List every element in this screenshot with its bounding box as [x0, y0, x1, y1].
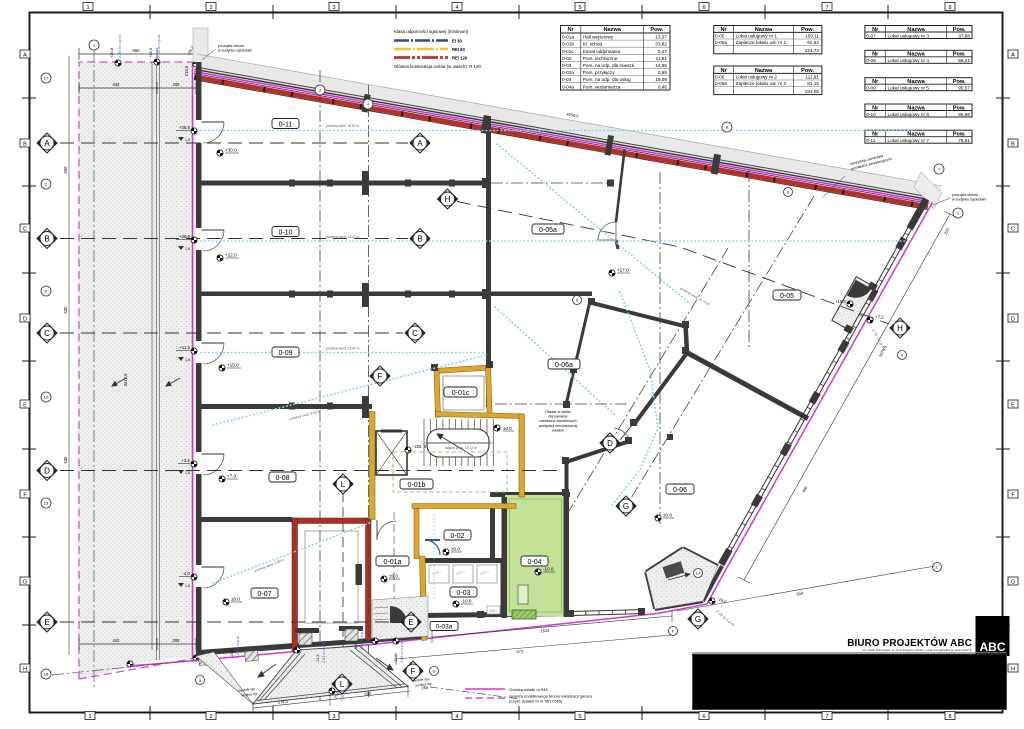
svg-text:0-01b: 0-01b	[562, 42, 574, 47]
svg-text:Nazwa: Nazwa	[755, 68, 773, 74]
svg-text:Nr: Nr	[720, 68, 727, 74]
svg-text:B: B	[23, 141, 27, 147]
svg-text:0-01c: 0-01c	[452, 390, 470, 397]
svg-text:dla kanałów: dla kanałów	[549, 415, 568, 419]
svg-text:11,91: 11,91	[656, 56, 668, 61]
svg-text:(część działek nr nr 561 i 565: (część działek nr nr 561 i 565)	[509, 699, 563, 704]
svg-text:213,5: 213,5	[184, 65, 189, 76]
svg-text:5: 5	[578, 714, 581, 720]
svg-text:Pow.: Pow.	[953, 52, 966, 58]
svg-text:wentylacji mechanicznej: wentylacji mechanicznej	[539, 424, 578, 428]
svg-text:+20,8: +20,8	[109, 47, 114, 58]
svg-text:33,82: 33,82	[655, 42, 667, 47]
svg-text:-19,5: -19,5	[230, 649, 234, 658]
svg-text:lokalów: lokalów	[552, 428, 564, 432]
svg-text:Klasa odporności ogniowej (min: Klasa odporności ogniowej (minimum)	[394, 29, 469, 34]
svg-text:0-06: 0-06	[715, 75, 725, 80]
svg-text:B: B	[417, 235, 422, 244]
svg-text:C: C	[412, 329, 418, 338]
svg-text:Pom. techniczne: Pom. techniczne	[583, 56, 618, 61]
svg-text:C: C	[23, 226, 27, 232]
svg-text:Nazwa: Nazwa	[603, 27, 621, 33]
svg-text:PL-72600 Świnoujście, ul. Armi: PL-72600 Świnoujście, ul. Armii Krajowej…	[863, 647, 973, 652]
svg-text:A: A	[23, 52, 27, 58]
svg-text:nawiewno-wywiewnych: nawiewno-wywiewnych	[539, 419, 576, 423]
svg-text:111,91: 111,91	[805, 75, 819, 80]
svg-text:0-01a: 0-01a	[562, 35, 574, 40]
svg-text:A: A	[1011, 52, 1015, 58]
svg-text:Główna konstrukcja nośna (w os: Główna konstrukcja nośna (w osiach): R 1…	[394, 64, 481, 69]
svg-text:95,57: 95,57	[958, 86, 970, 91]
svg-text:F: F	[411, 667, 416, 676]
svg-text:56,41: 56,41	[958, 58, 970, 63]
svg-text:H: H	[897, 324, 903, 333]
svg-text:F: F	[378, 372, 383, 381]
svg-text:+3,5: +3,5	[181, 458, 190, 463]
svg-text:0-04: 0-04	[562, 77, 572, 82]
svg-text:-10.0: -10.0	[461, 599, 472, 604]
svg-text:E: E	[1011, 402, 1015, 408]
svg-text:0-07: 0-07	[257, 591, 271, 598]
svg-text:Zaplecze lokalu usł. nr 2: Zaplecze lokalu usł. nr 2	[736, 81, 787, 86]
svg-text:0-09: 0-09	[278, 350, 292, 357]
svg-text:+25,8: +25,8	[179, 125, 191, 130]
svg-text:Lokal usługowy nr 5: Lokal usługowy nr 5	[888, 86, 930, 91]
svg-text:+26,6: +26,6	[179, 234, 191, 239]
svg-text:Nazwa: Nazwa	[907, 52, 925, 58]
svg-text:+15.0: +15.0	[227, 363, 239, 368]
svg-text:8: 8	[948, 5, 951, 11]
svg-text:Pow.: Pow.	[953, 79, 966, 85]
svg-text:Pow.: Pow.	[953, 132, 966, 138]
svg-text:0-06: 0-06	[673, 487, 687, 494]
svg-text:0-06a: 0-06a	[555, 362, 573, 369]
svg-text:0-10: 0-10	[278, 229, 292, 236]
svg-text:Nr: Nr	[567, 27, 574, 33]
svg-text:+17.0: +17.0	[617, 268, 629, 273]
svg-text:H: H	[445, 195, 451, 204]
svg-text:REI 60: REI 60	[452, 47, 465, 52]
svg-text:8: 8	[948, 714, 951, 720]
svg-text:0-01a: 0-01a	[384, 559, 402, 566]
svg-text:B: B	[44, 235, 49, 244]
svg-text:Pom. przyłączy: Pom. przyłączy	[583, 70, 615, 75]
svg-text:Nr: Nr	[872, 79, 879, 85]
svg-text:0-05: 0-05	[780, 293, 794, 300]
svg-text:208: 208	[173, 638, 181, 643]
svg-text:Lokal usługowy nr 3: Lokal usługowy nr 3	[888, 33, 930, 38]
svg-text:H: H	[23, 666, 27, 672]
svg-text:D: D	[607, 439, 613, 448]
svg-text:Nr: Nr	[872, 27, 879, 33]
svg-text:13: 13	[44, 501, 49, 506]
svg-text:G: G	[623, 502, 629, 511]
svg-text:2,66 m n.p.m.: 2,66 m n.p.m.	[400, 640, 404, 663]
svg-text:3: 3	[332, 714, 335, 720]
svg-text:10: 10	[44, 395, 49, 400]
svg-text:2,58 m n.p.m.: 2,58 m n.p.m.	[360, 627, 364, 650]
svg-text:873: 873	[516, 649, 524, 655]
svg-text:Pom. na odp. dla usług: Pom. na odp. dla usług	[583, 77, 631, 82]
svg-text:Pow.: Pow.	[953, 27, 966, 33]
svg-text:0-11: 0-11	[866, 138, 875, 143]
svg-text:0-03a: 0-03a	[562, 70, 574, 75]
svg-text:193,06: 193,06	[805, 89, 820, 94]
svg-text:w budynku sąsiednim: w budynku sąsiednim	[952, 198, 986, 202]
svg-text:1512: 1512	[540, 628, 550, 634]
svg-text:Nazwa: Nazwa	[907, 132, 925, 138]
svg-text:Nr: Nr	[872, 52, 879, 58]
svg-text:96,96: 96,96	[958, 112, 970, 117]
svg-text:Zaplecze lokalu usł. nr 1: Zaplecze lokalu usł. nr 1	[736, 40, 787, 45]
svg-text:630: 630	[63, 306, 68, 314]
svg-text:B: B	[1011, 141, 1015, 147]
svg-text:78,51: 78,51	[958, 138, 970, 143]
svg-text:±0.0: ±0.0	[663, 513, 672, 518]
svg-text:Pom. na odp. dla mieszk.: Pom. na odp. dla mieszk.	[583, 63, 636, 68]
svg-text:0-04: 0-04	[527, 559, 541, 566]
svg-text:G: G	[23, 579, 27, 585]
svg-text:Kanał oddymiania: Kanał oddymiania	[583, 49, 621, 54]
svg-text:Pow.: Pow.	[953, 105, 966, 111]
svg-text:1,5: 1,5	[185, 247, 190, 251]
svg-text:0-03a: 0-03a	[436, 623, 453, 630]
svg-text:0-05a: 0-05a	[539, 227, 557, 234]
svg-text:Nazwa: Nazwa	[907, 79, 925, 85]
svg-text:0,46: 0,46	[658, 84, 668, 89]
svg-text:+7,2: +7,2	[875, 315, 884, 320]
svg-text:81,15: 81,15	[807, 81, 819, 86]
svg-text:1,5: 1,5	[185, 138, 190, 142]
svg-text:Lokal usługowy nr 7: Lokal usługowy nr 7	[888, 138, 930, 143]
svg-text:0-07: 0-07	[866, 33, 876, 38]
svg-text:Lokal usługowy nr 2: Lokal usługowy nr 2	[736, 75, 778, 80]
svg-text:w budynku sąsiednim: w budynku sąsiednim	[218, 49, 252, 53]
svg-text:D: D	[44, 467, 50, 476]
svg-text:E: E	[44, 618, 49, 627]
svg-text:0-02: 0-02	[562, 56, 572, 61]
svg-text:+30.0: +30.0	[225, 148, 237, 153]
svg-text:EI 30: EI 30	[452, 39, 462, 44]
svg-text:Lokal usługowy nr 1: Lokal usługowy nr 1	[736, 34, 778, 39]
svg-text:-14,2: -14,2	[316, 654, 320, 663]
svg-text:+26,0: +26,0	[148, 47, 153, 58]
svg-text:0-03: 0-03	[456, 590, 470, 597]
svg-text:±0.0: ±0.0	[451, 547, 460, 552]
svg-text:4: 4	[455, 714, 458, 720]
svg-text:6: 6	[702, 714, 705, 720]
svg-text:442: 442	[113, 638, 121, 643]
svg-text:442: 442	[113, 82, 121, 87]
svg-text:600: 600	[63, 166, 68, 174]
svg-text:0-08: 0-08	[866, 58, 876, 63]
svg-text:0-04a: 0-04a	[562, 84, 574, 89]
svg-text:+15,0: +15,0	[835, 299, 847, 304]
svg-text:650: 650	[133, 48, 141, 53]
svg-text:630: 630	[63, 456, 68, 464]
svg-text:Nazwa: Nazwa	[907, 105, 925, 111]
svg-text:początek otworu: początek otworu	[218, 44, 244, 48]
svg-text:5,47: 5,47	[658, 49, 668, 54]
svg-text:Nazwa: Nazwa	[755, 27, 773, 33]
svg-text:Nazwa: Nazwa	[907, 27, 925, 33]
svg-text:0-05a: 0-05a	[715, 40, 727, 45]
svg-text:przekrój went. 13,47 m: przekrój went. 13,47 m	[326, 347, 360, 351]
svg-text:-4,0: -4,0	[182, 571, 190, 576]
svg-text:A: A	[417, 139, 423, 148]
svg-text:Pow.: Pow.	[801, 68, 814, 74]
svg-text:62,62: 62,62	[807, 40, 819, 45]
svg-text:L: L	[341, 480, 346, 489]
svg-text:14,85: 14,85	[655, 63, 667, 68]
svg-text:±0.0: ±0.0	[389, 574, 398, 579]
svg-text:A: A	[44, 139, 50, 148]
svg-text:1,5: 1,5	[185, 471, 190, 475]
svg-text:przekrój went. 13,47 m: przekrój went. 13,47 m	[326, 235, 360, 239]
svg-text:1,5: 1,5	[185, 358, 190, 362]
svg-text:0-09: 0-09	[866, 86, 876, 91]
svg-text:13,37: 13,37	[655, 35, 667, 40]
svg-text:7: 7	[825, 5, 828, 11]
svg-text:G: G	[1011, 579, 1015, 585]
svg-text:2: 2	[209, 714, 212, 720]
svg-text:Kl. schod.: Kl. schod.	[583, 42, 604, 47]
svg-text:dojazd wind. 19,22 m: dojazd wind. 19,22 m	[445, 446, 477, 450]
svg-text:1: 1	[86, 5, 89, 11]
svg-text:1: 1	[88, 714, 91, 720]
svg-text:G: G	[695, 615, 701, 624]
svg-text:0-05: 0-05	[715, 34, 725, 39]
svg-text:Pow.: Pow.	[801, 27, 814, 33]
svg-text:17: 17	[44, 76, 49, 81]
svg-text:4: 4	[455, 5, 458, 11]
svg-text:5: 5	[578, 5, 581, 11]
svg-text:C: C	[44, 329, 50, 338]
svg-text:Nr: Nr	[872, 105, 879, 111]
svg-text:D: D	[1011, 316, 1015, 322]
svg-text:0-01b: 0-01b	[408, 482, 426, 489]
svg-text:±0.0: ±0.0	[231, 597, 240, 602]
svg-text:ABC: ABC	[980, 640, 1006, 654]
svg-text:0-02: 0-02	[450, 533, 464, 540]
svg-text:1,5: 1,5	[185, 584, 190, 588]
svg-text:0-11: 0-11	[279, 121, 293, 128]
svg-text:3: 3	[332, 5, 335, 11]
svg-text:Nr: Nr	[720, 27, 727, 33]
svg-text:159,11: 159,11	[805, 34, 819, 39]
svg-text:0,65: 0,65	[658, 70, 668, 75]
svg-text:E: E	[408, 618, 413, 627]
svg-text:0-03: 0-03	[562, 63, 572, 68]
svg-text:+11,5: +11,5	[179, 345, 190, 350]
svg-text:0-08: 0-08	[275, 475, 289, 482]
svg-text:Granica działki nr 944: Granica działki nr 944	[509, 687, 548, 692]
svg-text:Hall wejściowy: Hall wejściowy	[583, 35, 614, 40]
svg-text:D: D	[23, 316, 27, 322]
svg-text:16: 16	[44, 672, 49, 677]
svg-text:G: G	[432, 669, 435, 674]
svg-text:2,49 m n.p.m.: 2,49 m n.p.m.	[117, 34, 122, 58]
svg-text:2,54 m n.p.m.: 2,54 m n.p.m.	[322, 640, 326, 663]
svg-text:Obszar w strefie: Obszar w strefie	[545, 410, 571, 414]
svg-text:przekrój went. 15,97 m: przekrój went. 15,97 m	[326, 124, 360, 128]
svg-text:37,98: 37,98	[958, 33, 970, 38]
svg-text:Lokal usługowy nr 6: Lokal usługowy nr 6	[888, 112, 930, 117]
svg-text:6: 6	[702, 5, 705, 11]
svg-text:+7.0: +7.0	[227, 474, 237, 479]
svg-text:2,49 m n.p.m.: 2,49 m n.p.m.	[236, 635, 240, 658]
svg-text:0-01c: 0-01c	[562, 49, 574, 54]
svg-text:Pom. wodomierza: Pom. wodomierza	[583, 84, 621, 89]
svg-text:Pow.: Pow.	[650, 27, 663, 33]
svg-text:19,09: 19,09	[655, 77, 667, 82]
svg-text:240 l: 240 l	[489, 609, 497, 613]
svg-text:0-10: 0-10	[866, 112, 876, 117]
svg-text:H: H	[1011, 666, 1015, 672]
svg-text:2: 2	[209, 5, 212, 11]
svg-text:-9,8: -9,8	[354, 643, 358, 650]
svg-text:początek otworu: początek otworu	[952, 193, 978, 197]
svg-text:Lokal usługowy nr 4: Lokal usługowy nr 4	[888, 58, 930, 63]
svg-text:Nr: Nr	[872, 132, 879, 138]
svg-text:0-06a: 0-06a	[715, 81, 727, 86]
svg-text:C: C	[1011, 226, 1015, 232]
svg-text:7: 7	[825, 714, 828, 720]
svg-text:221,73: 221,73	[805, 48, 820, 53]
svg-text:208: 208	[173, 82, 181, 87]
svg-text:REI 120: REI 120	[452, 56, 468, 61]
svg-text:2,54 m n.p.m.: 2,54 m n.p.m.	[156, 34, 161, 58]
svg-text:14: 14	[696, 571, 701, 576]
svg-text:±0.0: ±0.0	[503, 426, 512, 431]
svg-text:E: E	[23, 402, 27, 408]
svg-text:-10.0: -10.0	[543, 567, 554, 572]
svg-text:+22.0: +22.0	[225, 253, 237, 258]
svg-text:-225, 6: -225, 6	[413, 444, 427, 449]
